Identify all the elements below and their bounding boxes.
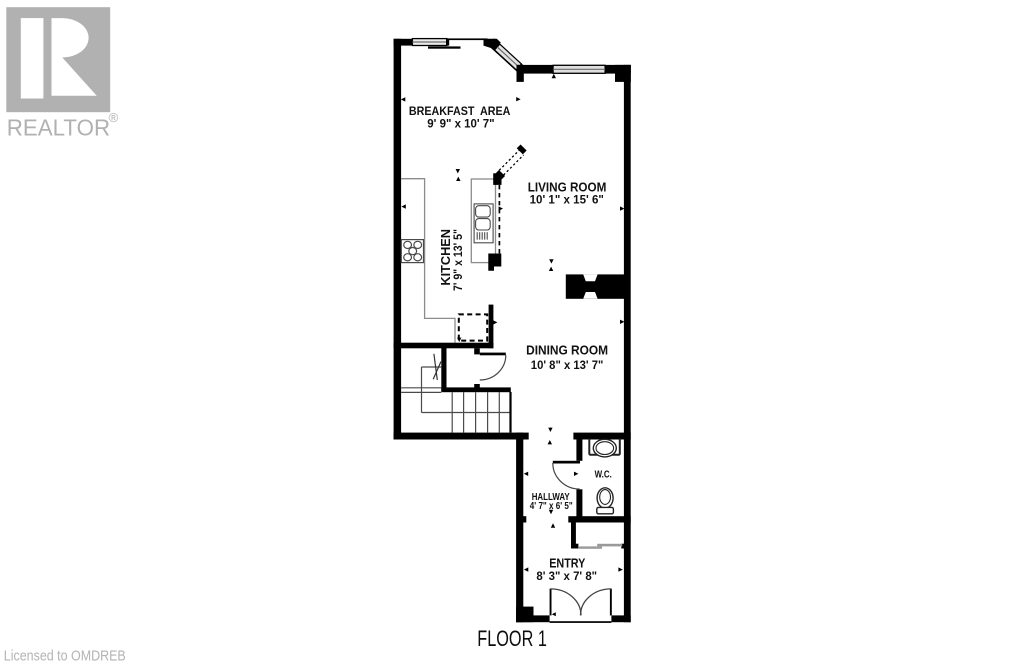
svg-text:10' 8" x 13' 7": 10' 8" x 13' 7" [531, 359, 604, 372]
svg-text:KITCHEN: KITCHEN [438, 229, 453, 286]
svg-text:®: ® [109, 110, 119, 125]
svg-text:7' 9" x 13' 5": 7' 9" x 13' 5" [452, 229, 465, 291]
svg-text:8' 3" x 7' 8": 8' 3" x 7' 8" [536, 570, 597, 583]
svg-text:9' 9" x 10' 7": 9' 9" x 10' 7" [427, 117, 494, 130]
svg-text:W.C.: W.C. [595, 470, 612, 481]
svg-text:LIVING ROOM: LIVING ROOM [528, 179, 607, 194]
svg-text:FLOOR 1: FLOOR 1 [477, 626, 547, 651]
svg-text:10' 1" x 15' 6": 10' 1" x 15' 6" [530, 194, 604, 207]
svg-text:Licensed to OMDREB: Licensed to OMDREB [4, 648, 126, 664]
svg-text:ENTRY: ENTRY [549, 556, 586, 571]
svg-text:BREAKFAST AREA: BREAKFAST AREA [409, 104, 511, 118]
svg-text:DINING ROOM: DINING ROOM [526, 343, 608, 358]
svg-text:REALTOR: REALTOR [7, 115, 110, 141]
